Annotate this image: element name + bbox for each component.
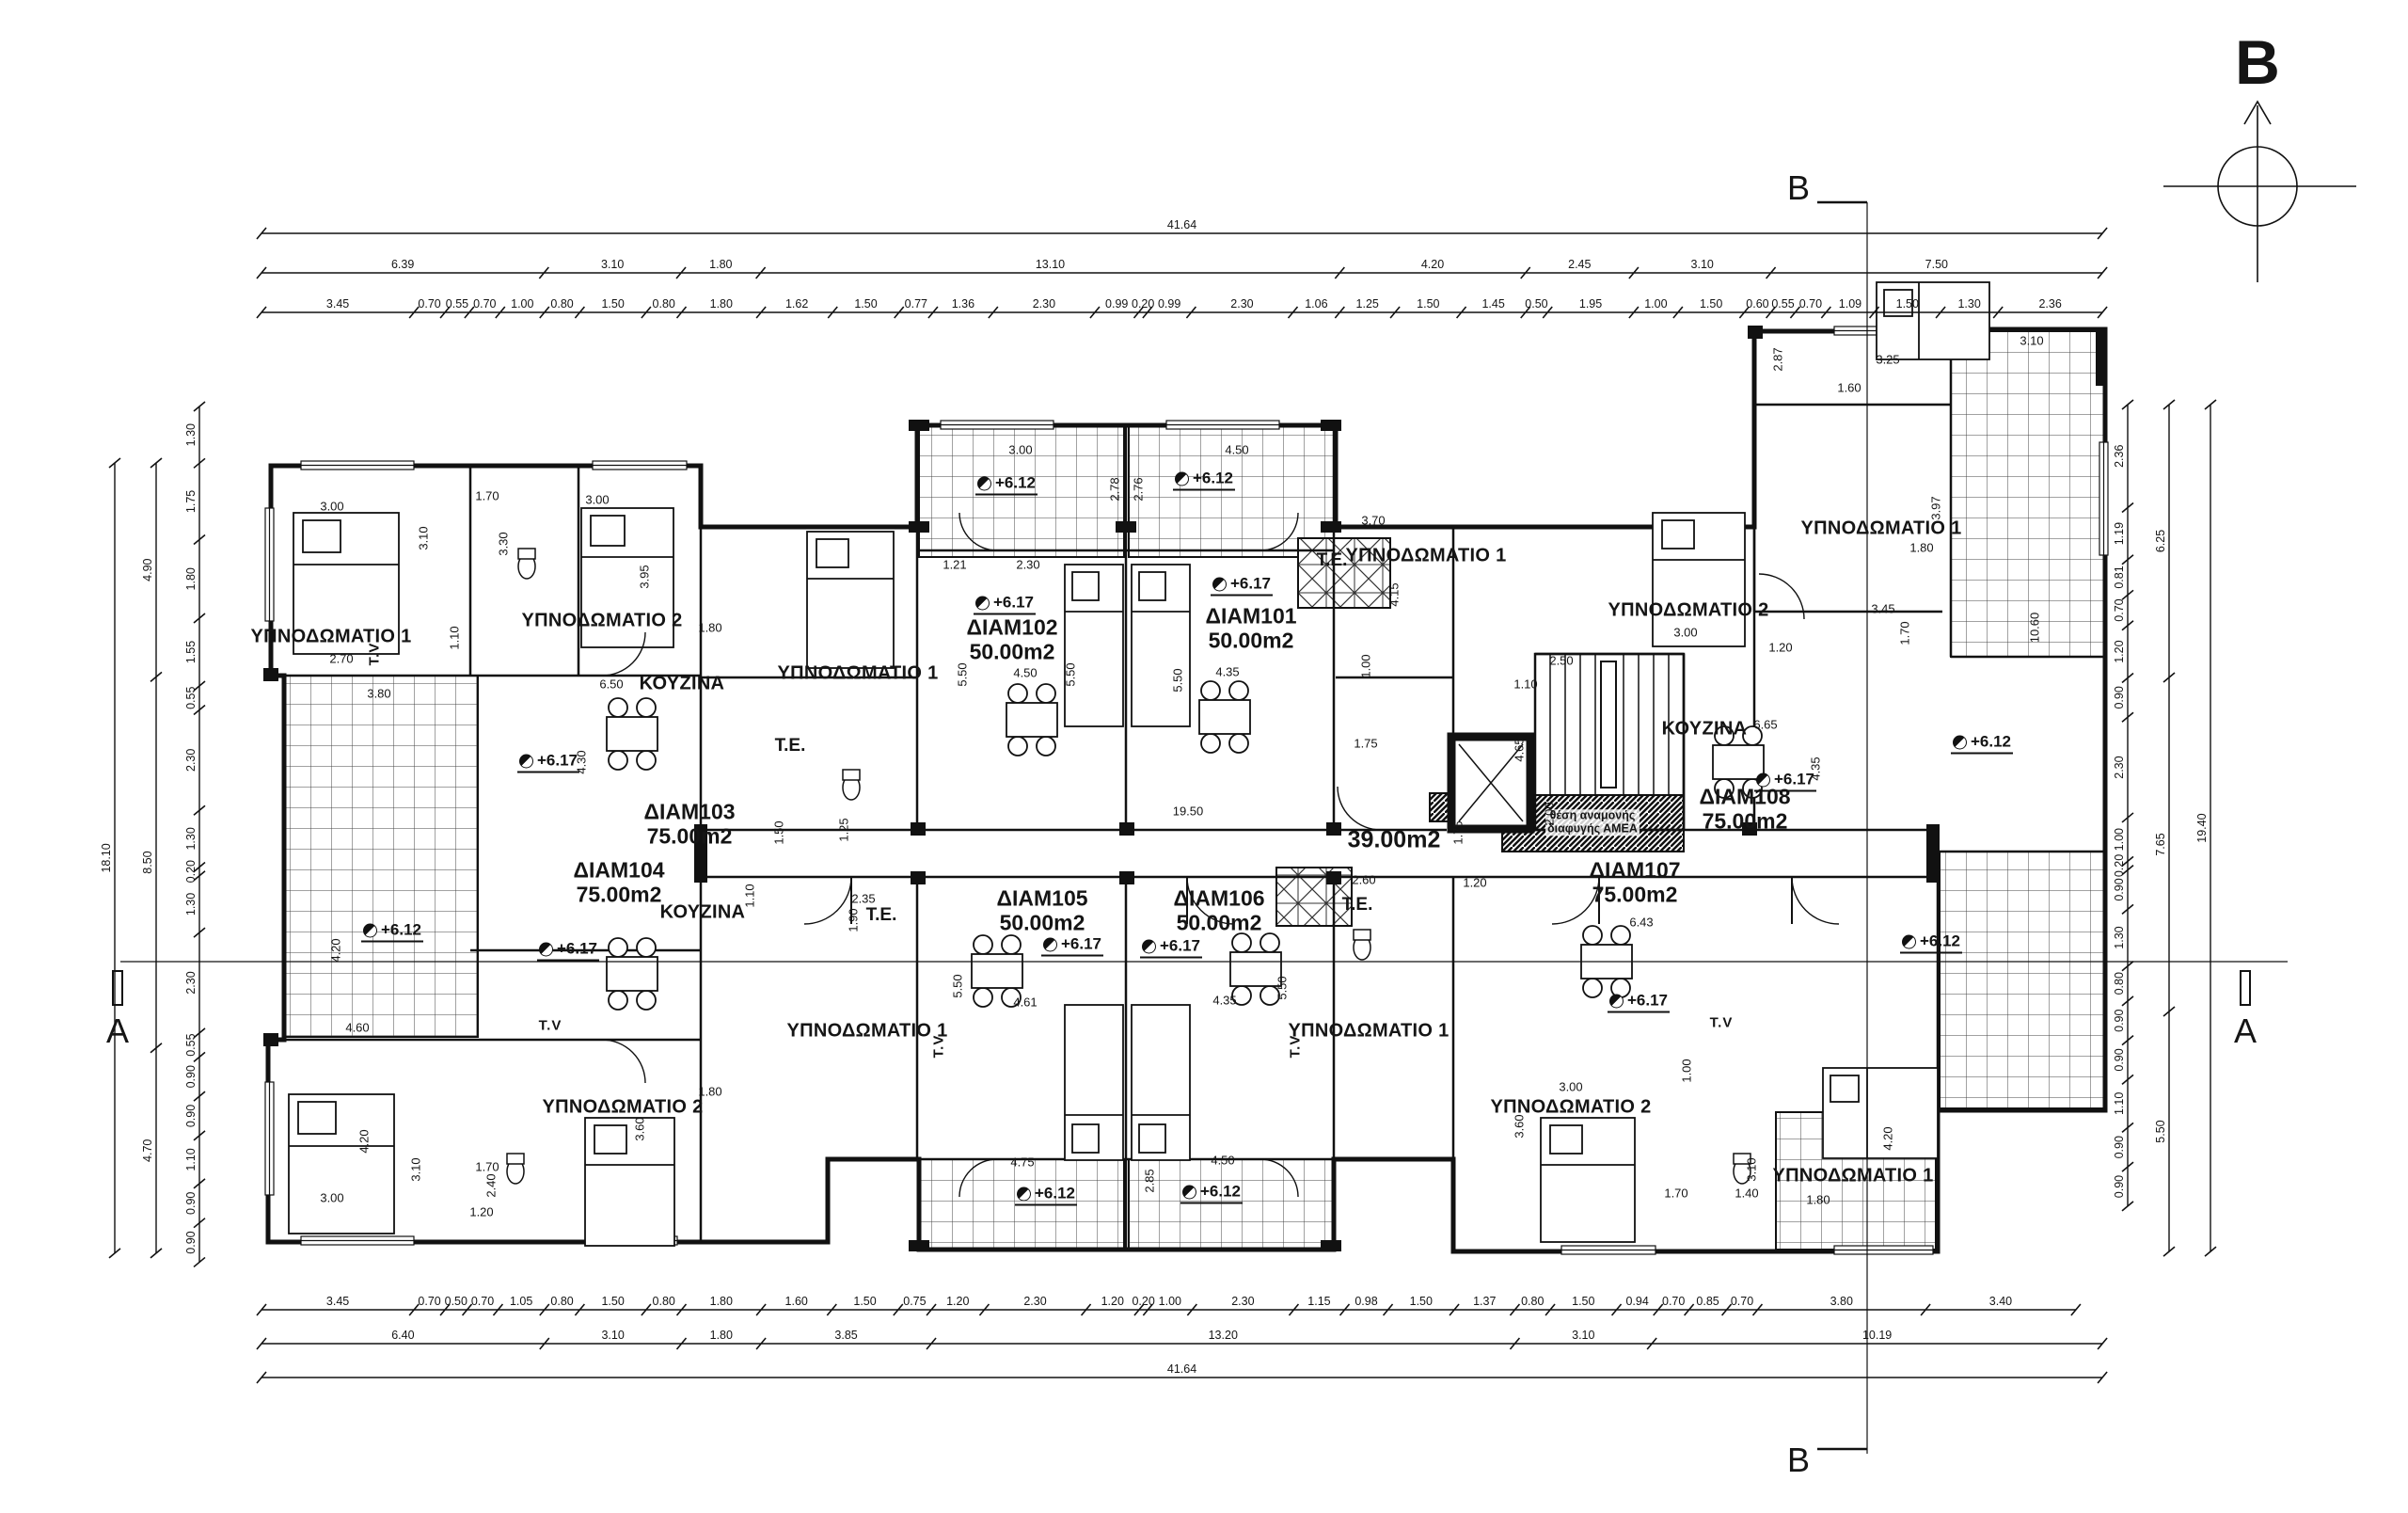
plan-dim-label: 4.15 — [1387, 582, 1402, 606]
elevation-dot-icon — [1175, 472, 1189, 486]
section-b-top-label: B — [1787, 168, 1810, 208]
elevation-dot-icon — [1212, 578, 1227, 592]
plan-dim-label: 1.10 — [743, 884, 757, 907]
plan-dim-label: 3.60 — [633, 1117, 647, 1140]
elevation-dot-icon — [1609, 995, 1624, 1009]
elevation-marker: +6.12 — [1180, 1183, 1243, 1204]
apartment-id: ΔΙΑΜ104 — [573, 858, 664, 883]
tv-marker: T.V — [931, 1035, 947, 1059]
plan-dim-label: 2.87 — [1771, 347, 1785, 371]
elevation-marker: +6.17 — [1754, 771, 1816, 792]
plan-dim-label: 1.50 — [772, 820, 786, 844]
plan-dim-label: 4.20 — [357, 1129, 372, 1153]
plan-dim-label: 6.43 — [1629, 916, 1653, 930]
plan-dim-label: 4.50 — [1013, 666, 1037, 680]
apartment-area: 50.00m2 — [1173, 911, 1264, 935]
north-letter: B — [2235, 26, 2280, 98]
apartment-id: ΔΙΑΜ102 — [966, 615, 1057, 640]
te-label: Τ.Ε. — [1317, 550, 1348, 571]
room-label: ΥΠΝΟΔΩΜΑΤΙΟ 2 — [542, 1097, 703, 1119]
elevation-value: +6.12 — [1193, 470, 1233, 487]
apartment-id: ΔΙΑΜ101 — [1205, 604, 1296, 629]
apartment-area: 75.00m2 — [573, 883, 664, 907]
plan-dim-label: 1.80 — [698, 1085, 721, 1099]
elevation-marker: +6.17 — [974, 594, 1036, 615]
elevation-dot-icon — [977, 477, 991, 491]
plan-dim-label: 1.00 — [1680, 1059, 1694, 1082]
plan-dim-label: 4.35 — [1215, 665, 1239, 679]
elevation-marker: +6.17 — [1041, 935, 1103, 957]
elevation-marker: +6.12 — [361, 921, 423, 943]
plan-dim-label: 3.10 — [1745, 1157, 1759, 1181]
elevation-marker: +6.12 — [1951, 733, 2013, 755]
plan-dim-label: 4.35 — [1809, 756, 1823, 780]
elevation-value: +6.12 — [995, 474, 1036, 492]
apartment-label: ΔΙΑΜ10375.00m2 — [643, 800, 735, 849]
plan-dim-label: 5.50 — [956, 662, 970, 686]
plan-dim-label: 2.50 — [1549, 654, 1573, 668]
room-label: ΥΠΝΟΔΩΜΑΤΙΟ 1 — [777, 663, 938, 685]
apartment-area: 75.00m2 — [643, 824, 735, 849]
label-overlay: B B B A A 39.00m2 θέση αναμονής διαφυγής… — [0, 0, 2408, 1513]
elevation-dot-icon — [539, 943, 553, 957]
room-label: ΥΠΝΟΔΩΜΑΤΙΟ 1 — [1345, 546, 1506, 567]
room-label: ΥΠΝΟΔΩΜΑΤΙΟ 1 — [250, 627, 411, 648]
room-label: ΥΠΝΟΔΩΜΑΤΙΟ 2 — [1608, 600, 1768, 622]
elevation-marker: +6.12 — [1173, 470, 1235, 491]
plan-dim-label: 1.75 — [1451, 820, 1465, 844]
plan-dim-label: 1.70 — [1664, 1187, 1687, 1201]
plan-dim-label: 2.30 — [1016, 558, 1039, 572]
plan-dim-label: 4.60 — [345, 1021, 369, 1035]
room-label: ΚΟΥΖΙΝΑ — [640, 674, 725, 695]
te-label: Τ.Ε. — [1342, 895, 1373, 916]
plan-dim-label: 1.10 — [448, 626, 462, 649]
elevation-value: +6.17 — [993, 594, 1034, 612]
apartment-area: 50.00m2 — [996, 911, 1087, 935]
elevation-marker: +6.17 — [517, 752, 579, 773]
plan-dim-label: 4.50 — [1225, 443, 1248, 457]
plan-dim-label: 1.75 — [1354, 737, 1377, 751]
plan-dim-label: 3.00 — [1008, 443, 1032, 457]
room-label: ΥΠΝΟΔΩΜΑΤΙΟ 1 — [1772, 1166, 1933, 1187]
plan-dim-label: 3.30 — [497, 532, 511, 555]
plan-dim-label: 1.10 — [1513, 677, 1537, 692]
elevation-dot-icon — [1902, 935, 1916, 949]
elevation-value: +6.17 — [537, 752, 578, 770]
plan-dim-label: 2.00 — [1543, 802, 1557, 825]
elevation-dot-icon — [519, 755, 533, 769]
elevation-value: +6.12 — [1200, 1183, 1241, 1201]
section-b-bottom-label: B — [1787, 1441, 1810, 1480]
elevation-dot-icon — [1142, 940, 1156, 954]
tv-marker: T.V — [1710, 1015, 1734, 1031]
plan-dim-label: 3.45 — [1871, 602, 1894, 616]
plan-dim-label: 6.65 — [1753, 718, 1777, 732]
apartment-id: ΔΙΑΜ106 — [1173, 886, 1264, 911]
plan-dim-label: 3.00 — [320, 1191, 343, 1205]
plan-dim-label: 2.40 — [484, 1173, 499, 1197]
plan-dim-label: 2.35 — [851, 892, 875, 906]
plan-dim-label: 2.70 — [329, 652, 353, 666]
plan-dim-label: 1.80 — [1806, 1193, 1830, 1207]
section-a-right-label: A — [2234, 1011, 2257, 1051]
plan-dim-label: 3.25 — [1876, 353, 1899, 367]
elevation-value: +6.17 — [557, 940, 597, 958]
plan-dim-label: 3.00 — [320, 500, 343, 514]
plan-dim-label: 10.60 — [2028, 613, 2042, 644]
apartment-label: ΔΙΑΜ10250.00m2 — [966, 615, 1057, 664]
elevation-marker: +6.17 — [1608, 992, 1670, 1013]
elevation-marker: +6.12 — [1015, 1185, 1077, 1206]
room-label: ΥΠΝΟΔΩΜΑΤΙΟ 1 — [1800, 518, 1961, 540]
plan-dim-label: 1.20 — [1768, 641, 1792, 655]
elevation-marker: +6.12 — [1900, 932, 1962, 954]
tv-marker: T.V — [539, 1018, 562, 1034]
elevation-marker: +6.17 — [537, 940, 599, 962]
elevation-dot-icon — [1182, 1186, 1196, 1200]
room-label: ΥΠΝΟΔΩΜΑΤΙΟ 1 — [1288, 1021, 1449, 1043]
plan-dim-label: 3.10 — [409, 1157, 423, 1181]
apartment-id: ΔΙΑΜ103 — [643, 800, 735, 824]
section-a-left-label: A — [106, 1011, 129, 1051]
plan-dim-label: 3.80 — [367, 687, 390, 701]
plan-dim-label: 4.65 — [1513, 738, 1527, 761]
apartment-label: ΔΙΑΜ10475.00m2 — [573, 858, 664, 907]
plan-dim-label: 3.00 — [585, 493, 609, 507]
apartment-label: ΔΙΑΜ10550.00m2 — [996, 886, 1087, 935]
plan-dim-label: 2.76 — [1132, 477, 1146, 501]
apartment-label: ΔΙΑΜ10875.00m2 — [1699, 785, 1790, 834]
elevation-dot-icon — [1017, 1187, 1031, 1202]
plan-dim-label: 1.80 — [698, 621, 721, 635]
plan-dim-label: 1.70 — [1898, 621, 1912, 645]
corridor-area-label: 39.00m2 — [1348, 827, 1441, 854]
elevation-marker: +6.17 — [1140, 937, 1202, 959]
te-label: Τ.Ε. — [775, 736, 806, 756]
apartment-id: ΔΙΑΜ107 — [1589, 858, 1680, 883]
plan-dim-label: 1.25 — [837, 818, 851, 841]
plan-dim-label: 1.21 — [943, 558, 966, 572]
plan-dim-label: 5.50 — [1171, 668, 1185, 692]
plan-dim-label: 2.60 — [1352, 873, 1375, 887]
plan-dim-label: 4.75 — [1010, 1155, 1034, 1170]
plan-dim-label: 19.50 — [1173, 804, 1204, 819]
elevation-value: +6.12 — [1035, 1185, 1075, 1202]
elevation-value: +6.17 — [1230, 575, 1271, 593]
plan-dim-label: 3.00 — [1559, 1080, 1582, 1094]
elevation-dot-icon — [1953, 736, 1967, 750]
plan-dim-label: 3.00 — [1673, 626, 1697, 640]
elevation-dot-icon — [363, 924, 377, 938]
apartment-area: 75.00m2 — [1589, 883, 1680, 907]
plan-dim-label: 1.20 — [469, 1205, 493, 1219]
plan-dim-label: 4.20 — [1881, 1126, 1895, 1150]
apartment-area: 50.00m2 — [966, 640, 1057, 664]
plan-dim-label: 1.70 — [475, 1160, 499, 1174]
plan-dim-label: 1.60 — [1837, 381, 1861, 395]
plan-dim-label: 1.20 — [1463, 876, 1486, 890]
elevation-value: +6.12 — [381, 921, 421, 939]
te-label: Τ.Ε. — [866, 905, 897, 926]
plan-dim-label: 1.90 — [847, 908, 861, 932]
elevation-dot-icon — [1756, 773, 1770, 788]
plan-dim-label: 3.95 — [638, 565, 652, 588]
plan-dim-label: 4.20 — [329, 938, 343, 962]
plan-dim-label: 1.00 — [1359, 654, 1373, 677]
plan-dim-label: 3.60 — [1513, 1114, 1527, 1138]
apartment-label: ΔΙΑΜ10650.00m2 — [1173, 886, 1264, 935]
apartment-label: ΔΙΑΜ10150.00m2 — [1205, 604, 1296, 653]
plan-dim-label: 4.61 — [1013, 995, 1037, 1010]
apartment-area: 50.00m2 — [1205, 629, 1296, 653]
plan-dim-label: 4.35 — [1212, 994, 1236, 1008]
stair-refuge-note: θέση αναμονής διαφυγής ΑΜΕΑ — [1545, 809, 1640, 836]
plan-dim-label: 3.97 — [1929, 496, 1943, 519]
room-label: ΥΠΝΟΔΩΜΑΤΙΟ 1 — [786, 1021, 947, 1043]
room-label: ΚΟΥΖΙΝΑ — [660, 902, 746, 924]
elevation-value: +6.17 — [1627, 992, 1668, 1010]
elevation-dot-icon — [975, 597, 990, 611]
plan-dim-label: 1.80 — [1909, 541, 1933, 555]
elevation-marker: +6.12 — [975, 474, 1038, 496]
plan-dim-label: 5.50 — [951, 974, 965, 997]
plan-dim-label: 4.50 — [1211, 1154, 1234, 1168]
room-label: ΚΟΥΖΙΝΑ — [1662, 719, 1748, 741]
room-label: ΥΠΝΟΔΩΜΑΤΙΟ 2 — [521, 611, 682, 632]
plan-dim-label: 3.70 — [1361, 514, 1385, 528]
plan-dim-label: 4.30 — [575, 750, 589, 773]
plan-dim-label: 3.10 — [2020, 334, 2043, 348]
apartment-id: ΔΙΑΜ105 — [996, 886, 1087, 911]
plan-dim-label: 5.50 — [1064, 662, 1078, 686]
elevation-value: +6.12 — [1920, 932, 1960, 950]
plan-dim-label: 2.85 — [1143, 1169, 1157, 1192]
floor-plan-sheet: 41.646.393.101.8013.104.202.453.107.503.… — [0, 0, 2408, 1513]
plan-dim-label: 6.50 — [599, 677, 623, 692]
elevation-marker: +6.17 — [1211, 575, 1273, 597]
plan-dim-label: 5.50 — [1275, 976, 1290, 999]
plan-dim-label: 2.78 — [1108, 477, 1122, 501]
apartment-label: ΔΙΑΜ10775.00m2 — [1589, 858, 1680, 907]
plan-dim-label: 1.70 — [475, 489, 499, 503]
apartment-area: 75.00m2 — [1699, 809, 1790, 834]
tv-marker: T.V — [1288, 1035, 1304, 1059]
plan-dim-label: 3.10 — [417, 526, 431, 549]
elevation-dot-icon — [1043, 938, 1057, 952]
elevation-value: +6.12 — [1971, 733, 2011, 751]
elevation-value: +6.17 — [1160, 937, 1200, 955]
elevation-value: +6.17 — [1061, 935, 1101, 953]
tv-marker: T.V — [367, 643, 383, 666]
plan-dim-label: 1.40 — [1735, 1187, 1758, 1201]
